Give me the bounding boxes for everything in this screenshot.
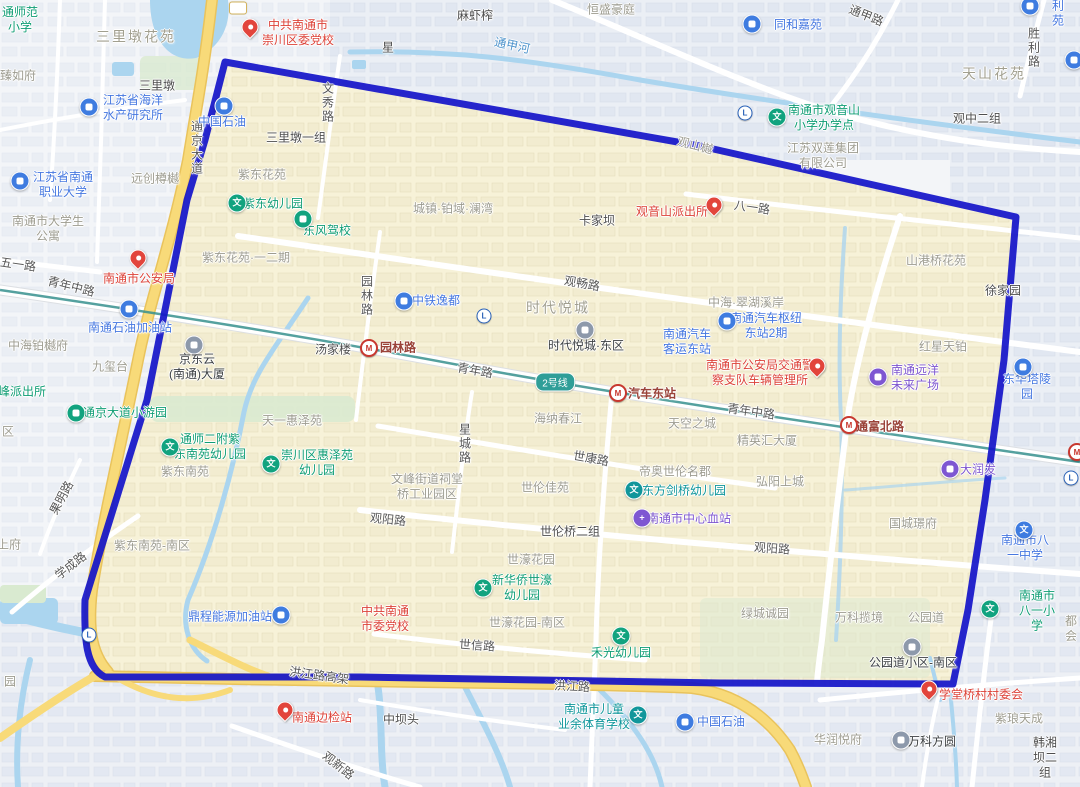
kindergarten-icon[interactable]: 文 — [228, 194, 247, 213]
shopping-mall-icon[interactable] — [869, 368, 888, 387]
map-label: 弘阳上城 — [756, 475, 804, 490]
road-label: 星城路 — [457, 423, 472, 465]
poi-label[interactable]: 通师范 小学 — [2, 5, 38, 35]
poi-label[interactable]: 南通市儿童 业余体育学校 — [558, 702, 630, 732]
sports-school-icon[interactable]: 文 — [629, 706, 648, 725]
kindergarten-icon[interactable]: 文 — [474, 579, 493, 598]
road-label: 青年路 — [456, 360, 494, 381]
poi-label[interactable]: 学堂桥村村委会 — [939, 688, 1023, 703]
map-label: 文峰街道祠堂 桥工业园区 — [391, 472, 463, 502]
poi-label[interactable]: 峰派出所 — [0, 385, 46, 400]
gas-station-icon[interactable] — [215, 97, 234, 116]
university-icon[interactable] — [11, 172, 30, 191]
map-label: 世伦桥二组 — [540, 525, 600, 540]
map-label: 城镇·铂域·澜湾 — [413, 202, 493, 217]
office-building-icon[interactable] — [185, 336, 204, 355]
cemetery-icon[interactable] — [1014, 358, 1033, 377]
blood-center-icon[interactable]: + — [633, 509, 652, 528]
gas-station-icon[interactable] — [676, 713, 695, 732]
map-label: 三里墩一组 — [266, 131, 326, 146]
map-label: 恒盛豪庭 — [587, 3, 635, 18]
poi-label[interactable]: 同和嘉苑 — [774, 18, 822, 33]
road-label: 青年中路 — [726, 401, 776, 423]
poi-label[interactable]: 东华塔陵园 — [1001, 372, 1054, 402]
map-label: 观山樾 — [676, 134, 715, 157]
poi-label[interactable]: 东方剑桥幼儿园 — [642, 484, 726, 499]
map-viewport[interactable]: 文文文文文文文文文+文LLLLMMMM通师范 小学三里墩花苑臻如府三里墩江苏省海… — [0, 0, 1080, 787]
road-label: 观阳路 — [369, 511, 406, 530]
poi-label[interactable]: 南通市公安局 — [103, 272, 175, 287]
map-label: 精英汇大厦 — [737, 434, 797, 449]
research-institute-icon[interactable] — [80, 98, 99, 117]
map-label: 上府 — [0, 538, 21, 553]
metro-line-badge[interactable]: 2号线 — [535, 373, 575, 392]
road-label: 八一路 — [733, 198, 771, 218]
poi-label[interactable]: 中铁逸都 — [412, 294, 460, 309]
poi-label[interactable]: 胜利苑 — [1047, 0, 1069, 29]
labels-overlay: 文文文文文文文文文+文LLLLMMMM通师范 小学三里墩花苑臻如府三里墩江苏省海… — [0, 0, 1080, 787]
poi-label[interactable]: 中国石油 — [697, 715, 745, 730]
road-label: 五一路 — [0, 255, 37, 275]
poi-label[interactable]: 紫东幼儿园 — [243, 197, 303, 212]
kindergarten-icon[interactable]: 文 — [612, 627, 631, 646]
poi-label[interactable]: 公园道小区-南区 — [869, 656, 957, 671]
driving-school-icon[interactable] — [294, 210, 313, 229]
clipped-poi-icon[interactable] — [1065, 51, 1080, 70]
map-label: 红星天铂 — [919, 340, 967, 355]
road-label: 文秀路 — [320, 82, 335, 124]
gas-station-icon[interactable] — [272, 606, 291, 625]
map-label: 汤家楼 — [315, 343, 351, 358]
village-committee-pin-icon[interactable] — [917, 677, 941, 701]
metro-logo-icon[interactable]: L — [738, 106, 753, 121]
residence-building-icon[interactable] — [892, 731, 911, 750]
residence-poi-icon[interactable] — [743, 15, 762, 34]
metro-station-label[interactable]: 园林路 — [380, 341, 416, 356]
metro-logo-icon[interactable]: L — [1064, 471, 1079, 486]
map-label: 臻如府 — [0, 69, 36, 84]
map-label: 卡家坝 — [579, 214, 615, 229]
map-label: 时代悦城 — [526, 299, 590, 317]
map-label: 三里墩花苑 — [96, 28, 176, 46]
road-label: 洪江路 — [554, 679, 591, 696]
poi-label[interactable]: 崇川区惠泽苑 幼儿园 — [281, 448, 353, 478]
map-label: 九玺台 — [92, 360, 128, 375]
map-label: 公园道 — [908, 611, 944, 626]
map-label: 天山花苑 — [962, 65, 1026, 83]
map-label: 山港桥花苑 — [906, 254, 966, 269]
map-label: 江苏双莲集团 有限公司 — [787, 141, 859, 171]
map-label: 万科揽境 — [835, 611, 883, 626]
river-label: 通甲河 — [493, 35, 531, 57]
kindergarten-icon[interactable]: 文 — [161, 438, 180, 457]
map-label: 天空之城 — [668, 417, 716, 432]
kindergarten-icon[interactable]: 文 — [262, 455, 281, 474]
map-label: 绿城诚园 — [741, 607, 789, 622]
map-label: 区 — [2, 425, 14, 440]
bus-hub-icon[interactable] — [718, 312, 737, 331]
poi-label[interactable]: 南通远洋 未来广场 — [891, 363, 939, 393]
real-estate-icon[interactable] — [395, 292, 414, 311]
map-label: 都会 — [1065, 614, 1077, 644]
map-label: 中海·翠湖溪岸 — [708, 296, 784, 311]
poi-label[interactable]: 中国石油 — [198, 115, 246, 130]
poi-label[interactable]: 中共南通 市委党校 — [361, 604, 409, 634]
map-label: 紫东花苑 — [238, 168, 286, 183]
metro-logo-icon[interactable]: L — [82, 628, 97, 643]
road-label: 果明路 — [47, 479, 77, 518]
map-label: 徐家园 — [985, 284, 1021, 299]
road-label: 观阳路 — [754, 540, 791, 557]
poi-label[interactable]: 南通市八一小学 — [1016, 589, 1059, 634]
metro-station-icon[interactable]: M — [609, 384, 627, 402]
poi-label[interactable]: 通师二附紫 东南苑幼儿园 — [174, 432, 246, 462]
poi-label[interactable]: 南通市公安局交通警 察支队车辆管理所 — [706, 358, 814, 388]
poi-label[interactable]: 江苏省南通 职业大学 — [33, 170, 93, 200]
road-label: 学成路 — [52, 549, 90, 583]
poi-label[interactable]: 禾光幼儿园 — [591, 646, 651, 661]
road-label: 世康路 — [572, 448, 610, 469]
residence-poi-icon[interactable] — [1021, 0, 1040, 16]
map-label: 中坝头 — [383, 713, 419, 728]
map-label: 韩湘坝二组 — [1028, 736, 1063, 781]
map-label: 紫东南苑-南区 — [114, 539, 190, 554]
poi-label[interactable]: 时代悦城·东区 — [548, 339, 624, 354]
road-label: 观畅路 — [563, 273, 601, 294]
poi-label[interactable]: 中共南通市 崇川区委党校 — [262, 18, 334, 48]
poi-label[interactable]: 江苏省海洋 水产研究所 — [103, 93, 163, 123]
road-label: 通甲路 — [846, 2, 885, 29]
road-label: 观新路 — [319, 749, 357, 783]
map-label: 星 — [382, 41, 394, 56]
poi-label[interactable]: 南通汽车枢纽 东站2期 — [730, 311, 802, 341]
poi-label[interactable]: 南通汽车 客运东站 — [663, 327, 711, 357]
supermarket-icon[interactable] — [941, 460, 960, 479]
map-label: 三里墩 — [139, 79, 175, 94]
map-label: 南通市大学生 公寓 — [12, 214, 84, 244]
poi-label[interactable]: 鼎程能源加油站 — [188, 610, 272, 625]
park-icon[interactable] — [67, 404, 86, 423]
map-label: 世伦佳苑 — [521, 481, 569, 496]
poi-label[interactable]: 大润发 — [960, 463, 996, 478]
map-label: 世濠花园-南区 — [489, 616, 565, 631]
map-label: 中海铂樾府 — [8, 339, 68, 354]
map-label: 紫东南苑 — [161, 465, 209, 480]
poi-label[interactable]: 南通边检站 — [292, 711, 352, 726]
road-label: 青年中路 — [46, 274, 96, 300]
residence-building-icon[interactable] — [903, 638, 922, 657]
road-label: 世信路 — [459, 637, 496, 654]
map-label: 海纳春江 — [534, 412, 582, 427]
metro-station-icon[interactable]: M — [1068, 443, 1080, 461]
map-label: 帝奥世伦名郡 — [639, 465, 711, 480]
map-label: 世濠花园 — [507, 553, 555, 568]
poi-label[interactable]: 新华侨世濠 幼儿园 — [492, 573, 552, 603]
map-label: 紫东花苑·一二期 — [202, 251, 290, 266]
poi-label[interactable]: 南通石油加油站 — [88, 321, 172, 336]
metro-station-label[interactable]: 通富北路 — [856, 420, 904, 435]
poi-label[interactable]: 京东云 (南通)大厦 — [169, 352, 225, 382]
primary-school-icon[interactable]: 文 — [981, 600, 1000, 619]
map-label: 紫琅天成 — [995, 712, 1043, 727]
kindergarten-icon[interactable]: 文 — [625, 481, 644, 500]
middle-school-icon[interactable]: 文 — [1015, 521, 1034, 540]
poi-label[interactable]: 万科方圆 — [908, 735, 956, 750]
poi-label[interactable]: 观音山派出所 — [636, 205, 708, 220]
poi-label[interactable]: 通京大道小游园 — [83, 406, 167, 421]
map-label: 华润悦府 — [814, 733, 862, 748]
map-label: 国城璟府 — [889, 517, 937, 532]
metro-station-icon[interactable]: M — [360, 339, 378, 357]
poi-label[interactable]: 东风驾校 — [303, 224, 351, 239]
poi-label[interactable]: 南通市中心血站 — [647, 512, 731, 527]
road-label: 胜利路 — [1026, 27, 1041, 69]
party-school-pin-icon[interactable] — [238, 15, 262, 39]
map-label: 观中二组 — [953, 112, 1001, 127]
metro-logo-icon[interactable]: L — [477, 309, 492, 324]
road-shield-icon[interactable] — [229, 2, 247, 15]
school-icon[interactable]: 文 — [768, 108, 787, 127]
gas-station-icon[interactable] — [120, 300, 139, 319]
road-label: 园林路 — [359, 275, 374, 317]
map-label: 麻虾榨 — [457, 9, 493, 24]
road-label: 洪江路高架 — [288, 664, 350, 687]
metro-station-label[interactable]: 汽车东站 — [628, 387, 676, 402]
police-bureau-pin-icon[interactable] — [126, 246, 150, 270]
poi-label[interactable]: 南通市观音山 小学办学点 — [788, 103, 860, 133]
map-label: 远创樽樾 — [131, 172, 179, 187]
metro-station-icon[interactable]: M — [840, 416, 858, 434]
map-label: 园 — [4, 675, 16, 690]
map-label: 天一惠泽苑 — [262, 414, 322, 429]
residence-building-icon[interactable] — [576, 321, 595, 340]
